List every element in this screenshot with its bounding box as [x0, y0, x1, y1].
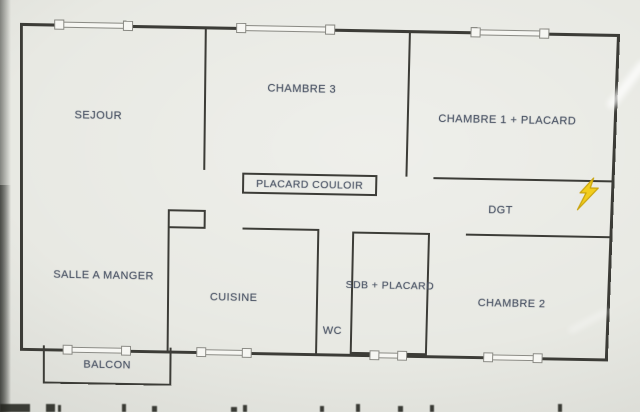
window-end	[196, 347, 206, 357]
window-rail	[489, 354, 537, 361]
room-label-sejour: SEJOUR	[74, 109, 122, 122]
room-label-chambre2: CHAMBRE 2	[478, 297, 546, 310]
wall-dgt-bottom	[466, 234, 610, 239]
cropped-glyph	[231, 407, 237, 412]
window-end	[54, 19, 64, 29]
room-label-sdb: SDB + PLACARD	[346, 279, 435, 292]
cropped-glyph	[152, 406, 157, 412]
photo-edge-shadow	[0, 185, 11, 412]
cropped-text-artifacts	[0, 400, 640, 412]
window-chambre1	[472, 28, 547, 39]
window-end	[236, 23, 246, 33]
window-chambre3	[238, 24, 333, 35]
cropped-glyph	[0, 404, 30, 412]
room-label-cuisine: CUISINE	[210, 291, 258, 304]
window-end	[63, 345, 73, 355]
room-label-chambre1: CHAMBRE 1 + PLACARD	[438, 113, 576, 128]
floor-plan: PLACARD COULOIR BALCON	[20, 23, 620, 362]
photo-edge-shadow	[0, 0, 11, 412]
room-label-dgt: DGT	[488, 204, 513, 216]
window-wc	[371, 351, 405, 360]
window-end	[397, 351, 407, 361]
room-label-wc: WC	[323, 325, 342, 337]
room-label-salle-a-manger: SALLE A MANGER	[53, 269, 154, 283]
window-end	[483, 352, 493, 362]
window-end	[470, 27, 480, 37]
window-end	[325, 24, 335, 34]
cropped-glyph	[558, 404, 562, 412]
window-rail	[202, 349, 246, 356]
window-sejour	[56, 20, 131, 31]
floorplan-photo: PLACARD COULOIR BALCON	[0, 0, 640, 412]
room-label-chambre3: CHAMBRE 3	[267, 82, 336, 95]
wall-wc-left	[315, 230, 319, 353]
cropped-glyph	[398, 406, 403, 412]
cropped-glyph	[46, 404, 55, 412]
wall-chambre3-right	[405, 33, 410, 177]
window-end	[121, 346, 131, 356]
duct-box	[168, 209, 206, 229]
cropped-glyph	[243, 405, 247, 412]
cropped-glyph	[122, 404, 126, 412]
window-end	[123, 21, 133, 31]
window-rail	[477, 29, 544, 36]
window-end	[369, 350, 379, 360]
room-label-placard-couloir: PLACARD COULOIR	[256, 177, 363, 191]
window-end	[539, 28, 549, 38]
placard-couloir-box: PLACARD COULOIR	[242, 173, 377, 196]
window-balcon-door	[65, 346, 129, 356]
sdb-box	[350, 232, 430, 356]
cropped-glyph	[430, 405, 434, 412]
wall-cuisine-top	[243, 228, 320, 231]
window-rail	[242, 25, 329, 33]
lightning-bolt-icon	[575, 177, 602, 211]
cropped-glyph	[320, 406, 324, 412]
window-chambre2	[485, 353, 541, 363]
window-end	[533, 353, 543, 363]
wall-sejour-right	[203, 29, 207, 170]
cropped-glyph	[356, 404, 360, 412]
cropped-glyph	[58, 405, 61, 412]
window-rail	[60, 22, 127, 29]
wall-cuisine-left	[167, 226, 170, 350]
window-end	[242, 348, 252, 358]
room-label-balcon: BALCON	[83, 358, 130, 371]
window-rail	[69, 347, 125, 354]
window-cuisine	[198, 348, 250, 358]
